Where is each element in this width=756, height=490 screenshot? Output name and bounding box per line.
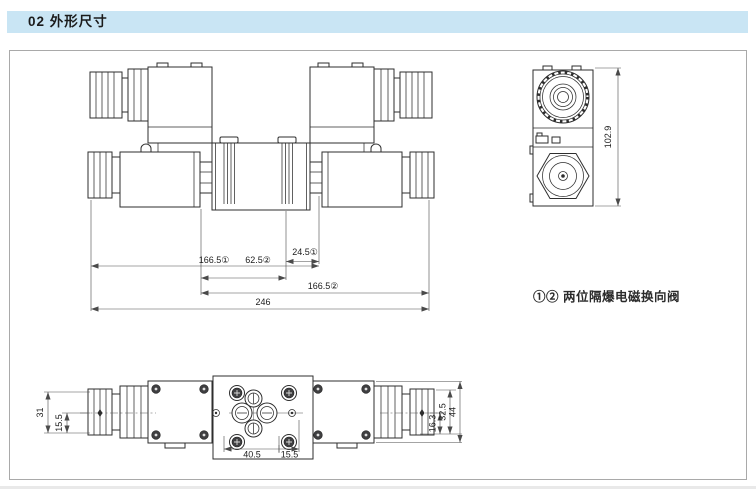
drawing-caption: ①② 两位隔爆电磁换向阀	[533, 289, 680, 304]
dim-label-24-5: 24.5①	[292, 247, 318, 257]
dim-label-102-9: 102.9	[603, 126, 613, 149]
front-valve-body	[212, 137, 310, 210]
top-right-gland	[374, 386, 434, 438]
dim-label-166-5-b: 166.5②	[308, 281, 339, 291]
top-right-foot	[337, 443, 357, 448]
dim-label-62-5: 62.5②	[245, 255, 271, 265]
front-left-cable-gland	[90, 69, 148, 121]
side-solenoid-end-circles	[537, 71, 589, 123]
top-left-foot	[165, 443, 185, 448]
front-right-junction-box	[310, 63, 374, 152]
bottom-divider	[0, 486, 756, 489]
front-right-cable-gland	[374, 69, 432, 121]
page: 02 外形尺寸	[0, 0, 756, 490]
front-right-solenoid-tube	[310, 144, 434, 207]
top-left-gland	[88, 386, 148, 438]
dim-label-40-5: 40.5	[243, 450, 261, 460]
dim-label-246: 246	[255, 297, 270, 307]
dim-label-32-5: 32.5	[438, 403, 448, 421]
front-left-junction-box	[148, 63, 212, 152]
dim-label-166-5-a: 166.5①	[199, 255, 230, 265]
dim-label-15-5-left: 15.5	[54, 414, 64, 432]
dimension-drawing: 24.5① 166.5① 62.5② 166.5② 246	[0, 0, 756, 490]
dim-label-15-5-bottom: 15.5	[281, 450, 299, 460]
dim-label-44: 44	[448, 407, 458, 417]
front-left-solenoid-tube	[88, 144, 212, 207]
dim-label-31: 31	[35, 407, 45, 417]
dim-label-16-3: 16.3	[428, 415, 438, 433]
